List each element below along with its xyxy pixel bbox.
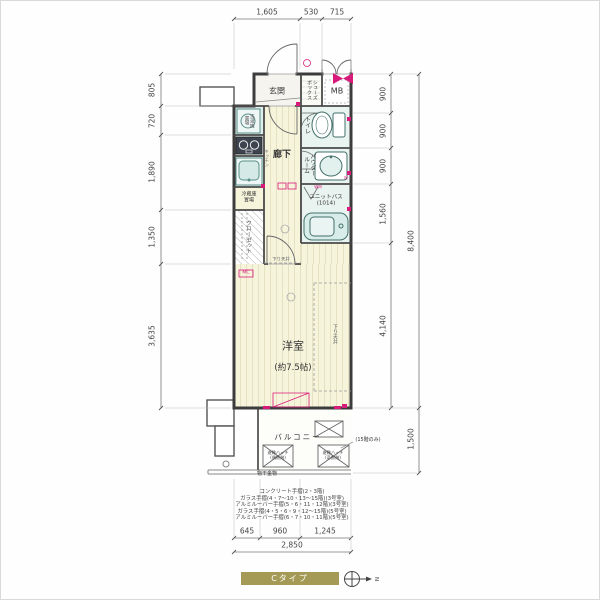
room-label-western: 洋室 [282, 341, 304, 354]
room-label-genkan: 玄関 [269, 86, 285, 95]
room-label-closet: クローゼット [245, 220, 251, 254]
hose-bib-icon [223, 461, 229, 467]
compass-letter: N [373, 577, 379, 581]
room-label-fridge: 冷蔵庫 置場 [241, 192, 256, 204]
bathtub-icon [304, 213, 348, 240]
note-lowered-ceiling-2: 下り天井 [272, 257, 290, 262]
room-label-western-size: (約7.5帖) [274, 364, 311, 374]
note-hatch-left: 避難ハッチ (偶数階) [268, 451, 289, 461]
room-label-mb: MB [331, 86, 343, 95]
dim-right-5: 4,140 [380, 315, 389, 336]
dim-bottom-total: 2,850 [281, 542, 302, 551]
note-hatch-right: 避難ハッチ (奇数階) [323, 451, 344, 461]
railing-note-2: ガラス手摺(4・7〜10・13〜15階)(3号室) [240, 495, 344, 501]
dim-left-4: 1,350 [149, 226, 158, 247]
ceiling-light-icons [281, 225, 295, 301]
dim-top-1: 1,605 [256, 9, 277, 18]
room-label-hallway: 廊下 [273, 150, 291, 160]
railing-note-4: ガラス手摺(4・5・6・9・12〜15階)(5号室) [237, 508, 346, 514]
dim-left-2: 720 [149, 114, 158, 128]
genkan-step-line [256, 98, 300, 102]
vanity-sink-icon [315, 152, 347, 180]
railing-note-3: アルミルーバー手摺(5・6・11・12階)(3号室) [235, 502, 348, 508]
room-label-laundry: 洗濯機 置場 [244, 114, 255, 128]
dim-bottom-2: 960 [273, 528, 287, 537]
room-label-powder: パウダー ルーム [303, 154, 316, 176]
dim-right-3: 900 [380, 159, 389, 173]
dim-left-1: 805 [149, 83, 158, 97]
dim-left-3: 1,890 [149, 161, 158, 182]
stove-icon [236, 137, 262, 154]
dim-bottom-1: 645 [240, 528, 254, 537]
dim-bottom-3: 1,245 [314, 528, 335, 537]
dim-top-3: 715 [330, 9, 344, 18]
kitchen-sink-icon [236, 158, 262, 185]
railing-note-1: コンクリート手摺(2・3階) [260, 489, 325, 495]
dim-right-total: 8,400 [408, 230, 417, 251]
exterior-wall-blocks [200, 87, 234, 456]
dim-right-2: 900 [380, 124, 389, 138]
note-laundry-pole: 物干金物 [257, 472, 277, 478]
room-label-balcony: バルコニー [274, 434, 321, 443]
type-banner: Cタイプ [241, 572, 339, 585]
toilet-icon [312, 112, 345, 138]
mb-door-bowtie-icon [333, 73, 353, 84]
note-15f-only: (15階のみ) [355, 438, 380, 444]
floor-plan-page: 1,605 530 715 805 720 1,890 1,350 3,635 … [0, 0, 600, 600]
dim-top-2: 530 [304, 9, 318, 18]
dim-right-1: 900 [380, 87, 389, 101]
type-banner-label: Cタイプ [271, 573, 309, 584]
note-mc: MC [242, 270, 249, 275]
room-label-shoebox: シューズ ボックス [305, 80, 317, 100]
room-label-kitchen: キッチン [263, 149, 268, 167]
mark-m: M [344, 177, 347, 182]
mark-wm: WM [314, 186, 321, 191]
compass-icon [345, 572, 373, 587]
note-lowered-ceiling: 下り天井 [331, 324, 337, 344]
dim-balcony-depth: 1,500 [408, 428, 417, 449]
railing-note-5: アルミルーバー手摺(6・7・10・11階)(5号室) [235, 515, 348, 521]
dim-right-4: 1,560 [380, 203, 389, 224]
room-label-toilet: トイレ [303, 116, 310, 134]
room-label-unitbath: ユニットバス (1014) [309, 195, 343, 208]
dim-left-5: 3,635 [149, 325, 158, 346]
